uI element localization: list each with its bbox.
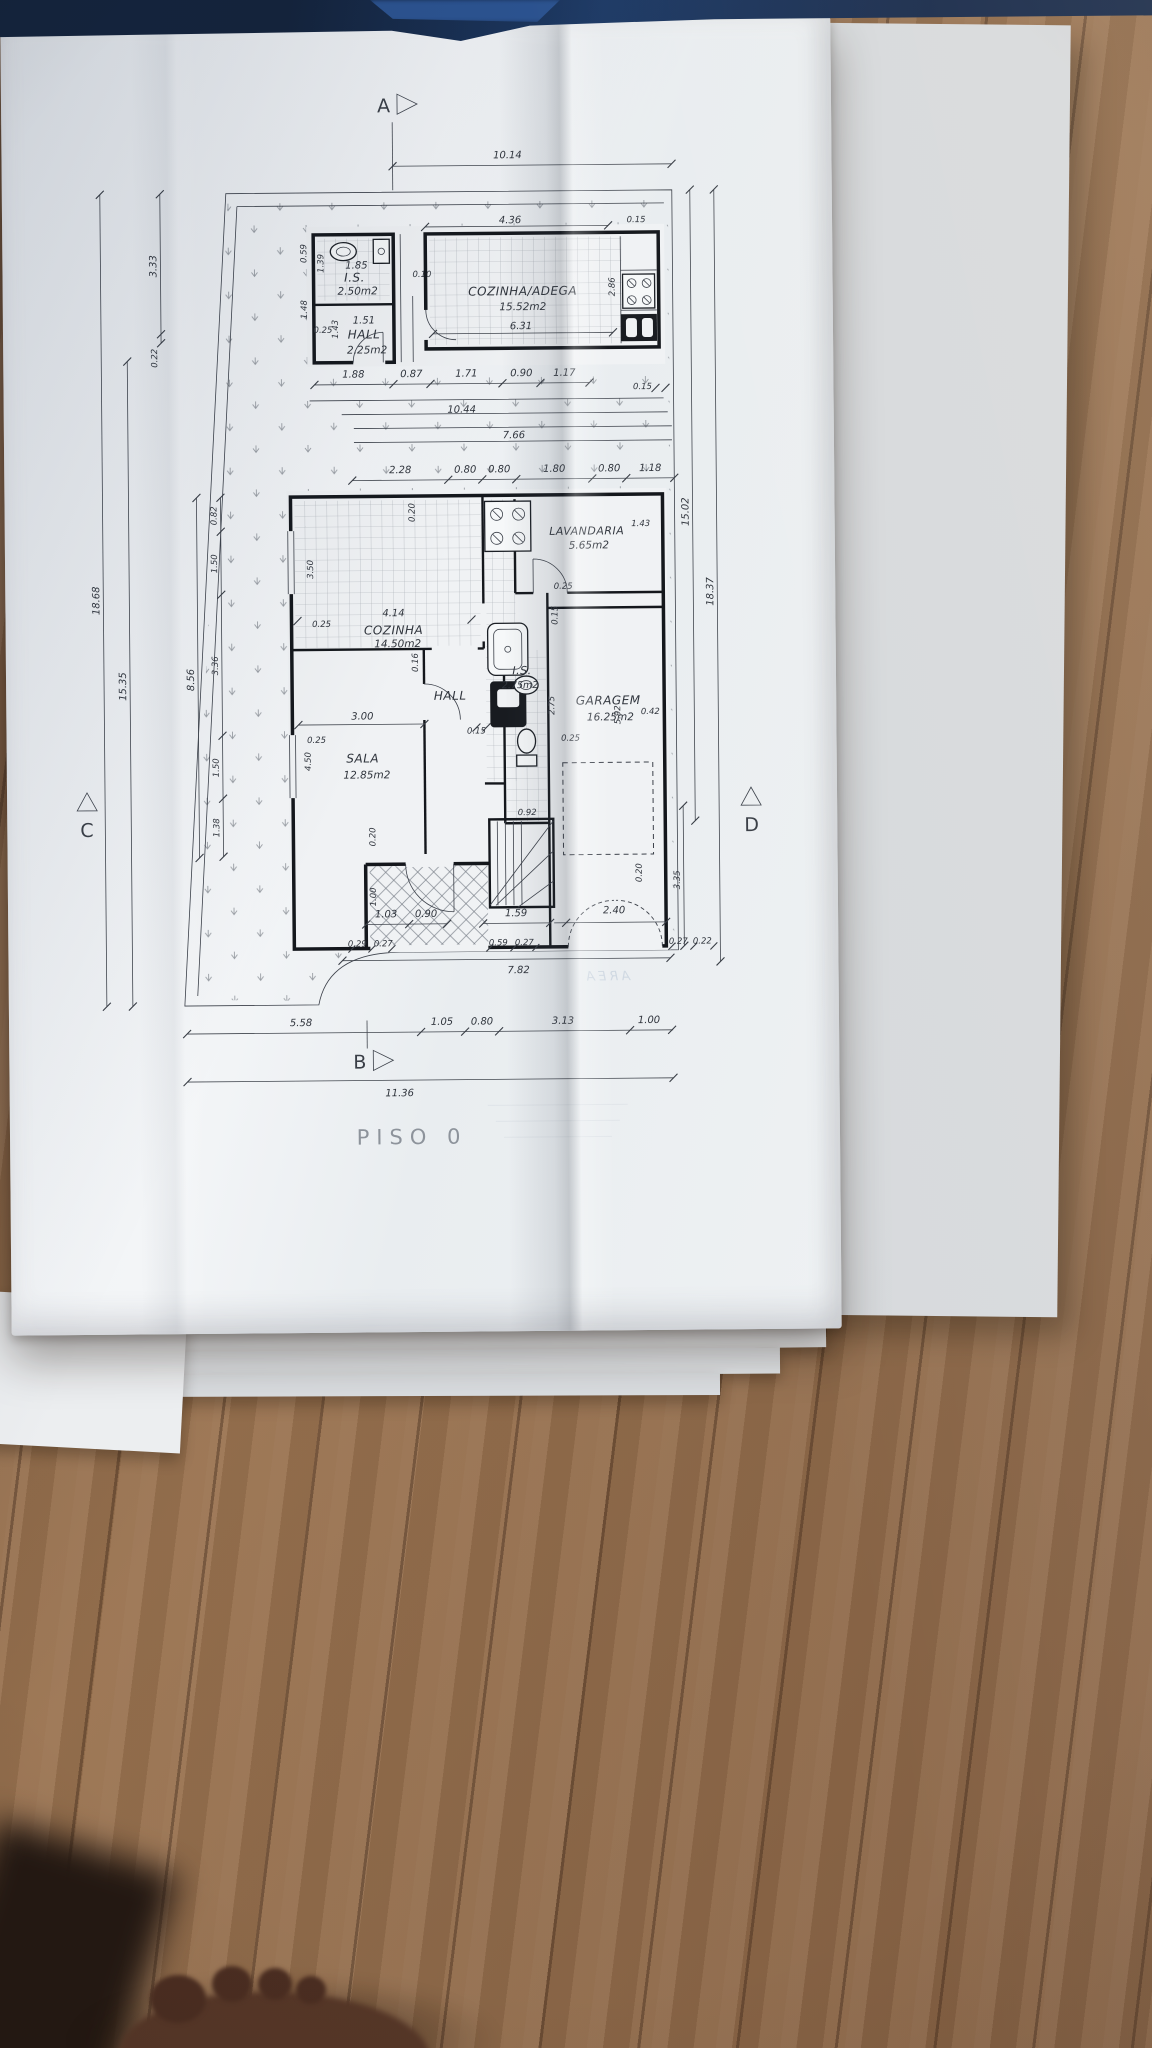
dim-adega-height: 2.86 [608, 277, 618, 297]
section-arrow-a [397, 94, 417, 114]
dim-left-wall-3: 1.50 [212, 758, 222, 777]
area-label-hall-upper: 2.25m2 [347, 344, 388, 356]
toilet-fixture [373, 239, 389, 263]
dim-upper-hall-height: 1.43 [331, 320, 341, 339]
room-label-cozinha-adega: COZINHA/ADEGA [468, 284, 577, 299]
dim-porch-depth: 1.00 [369, 887, 379, 906]
porch-paving [370, 865, 489, 946]
dim-garagem-offset-left: 0.25 [561, 734, 580, 744]
dim-garagem-height: 5.92 [613, 705, 623, 724]
dim-upper-hall-width: 1.51 [353, 315, 375, 326]
dim-top-width: 10.14 [493, 150, 522, 161]
dim-left-lower: 15.35 [118, 672, 129, 701]
dim-annex-left-b: 1.48 [300, 299, 310, 319]
dim-scale-4: 1.00 [638, 1015, 660, 1026]
dim-sala-width: 3.00 [351, 711, 373, 722]
dim-left-step: 0.22 [150, 349, 160, 368]
dim-sala-gap: 0.15 [467, 726, 486, 736]
dim-row1-0: 1.88 [342, 369, 364, 380]
dim-scale-1: 1.05 [431, 1017, 453, 1028]
room-label-is-upper: I.S. [344, 270, 365, 284]
dim-left-house: 8.56 [186, 669, 197, 691]
dim-row2-0: 2.28 [389, 465, 411, 476]
photo-of-floor-plan: A B C D 10.14 [0, 0, 1152, 2048]
dim-row4-l0: 0.29 [348, 939, 367, 949]
dim-row2-5: 1.18 [639, 463, 661, 474]
room-label-hall-upper: HALL [348, 327, 381, 341]
area-label-garagem: 16.25m2 [587, 711, 634, 723]
dim-row2-4: 0.80 [598, 463, 620, 474]
paper-back-sheet [805, 23, 1071, 1318]
dim-row1-2: 1.71 [455, 368, 477, 379]
dim-bottom-total: 11.36 [385, 1088, 414, 1099]
floor-plan-drawing: A B C D 10.14 [59, 61, 775, 1173]
bleed-text: AREA [583, 969, 631, 984]
plan-title: PISO 0 [357, 1125, 468, 1150]
dim-top: 10.14 [388, 149, 675, 171]
is-toilet-fixture [517, 729, 535, 753]
cooktop-fixture-cozinha [484, 501, 530, 551]
dim-garagem-wall: 0.15 [550, 606, 560, 625]
dim-row2-2: 0.80 [488, 464, 510, 475]
dim-upper-hall-offset: 0.25 [313, 326, 332, 336]
is-toilet-tank [517, 755, 537, 766]
area-label-lavandaria: 5.65m2 [569, 539, 610, 551]
dim-row3-2: 1.59 [505, 908, 527, 919]
dim-scale-3: 3.13 [552, 1016, 574, 1027]
dim-row4-l1: 0.27 [374, 939, 394, 949]
paper-stack-sheet [120, 1373, 720, 1397]
section-marker-c: C [80, 820, 93, 842]
dim-row1-3: 0.90 [510, 368, 532, 379]
dim-gap-note: 0.10 [412, 270, 431, 280]
dim-row4-m0: 0.59 [489, 938, 508, 948]
dim-row1-1: 0.87 [400, 369, 423, 380]
dim-garage-door-offset: 0.20 [635, 863, 645, 882]
dim-left-wall-4: 1.38 [212, 818, 222, 838]
room-label-hall: HALL [434, 689, 467, 703]
dim-row2-3: 1.80 [543, 464, 565, 475]
area-label-is: 2.75m2 [502, 680, 539, 691]
dim-cozinha-offset: 0.25 [312, 620, 331, 630]
dim-right-lower: 3.35 [673, 870, 683, 889]
dim-row4-m1: 0.27 [515, 938, 535, 948]
dim-row1-4: 1.17 [553, 368, 576, 379]
section-arrow-d [741, 787, 761, 805]
dim-left-total: 18.68 [91, 586, 102, 615]
dim-lavandaria: 1.43 [631, 519, 650, 529]
room-label-garagem: GARAGEM [576, 693, 641, 708]
dim-cozinha-top: 0.20 [407, 503, 417, 522]
dim-bottom-inner: 7.82 [507, 965, 529, 976]
toe [258, 1968, 292, 2000]
section-arrow-b [373, 1050, 393, 1070]
dim-adega-width: 4.36 [499, 215, 521, 226]
dim-band-upper: 10.44 [447, 405, 476, 416]
washbasin-fixture [330, 243, 356, 261]
dim-annex-left-a: 0.59 [299, 244, 309, 263]
dim-is-width: 0.92 [518, 808, 537, 818]
area-label-cozinha: 14.50m2 [374, 638, 421, 650]
dim-row2-1: 0.80 [454, 465, 476, 476]
toe [150, 1975, 206, 2023]
section-marker-d: D [744, 814, 759, 836]
section-marker-a: A [377, 95, 390, 117]
bleed-through: AREA [487, 969, 633, 1137]
dim-row3-0: 1.03 [375, 909, 397, 920]
dim-left-wall-2: 3.36 [211, 656, 221, 676]
area-label-is-upper: 2.50m2 [337, 285, 378, 297]
dim-porch-step: 0.20 [368, 827, 378, 846]
dim-garagem-offset: 0.42 [641, 707, 660, 717]
dim-scale-2: 0.80 [471, 1016, 493, 1027]
room-label-is: I.S. [512, 664, 531, 677]
section-arrow-c [77, 793, 97, 811]
dim-row1-end: 0.15 [633, 382, 652, 392]
dim-lavandaria-offset: 0.25 [554, 582, 573, 592]
dim-left-wall-1: 1.50 [210, 554, 220, 573]
area-label-sala: 12.85m2 [343, 769, 390, 781]
dim-adega-end: 0.15 [627, 215, 646, 225]
dim-wall-thickness: 0.16 [411, 652, 421, 672]
room-label-lavandaria: LAVANDARIA [549, 524, 624, 538]
plan-paper-spread: A B C D 10.14 [0, 16, 841, 1335]
area-label-cozinha-adega: 15.52m2 [499, 301, 546, 313]
dim-scale-0: 5.58 [290, 1018, 312, 1029]
dim-right-total: 18.37 [705, 576, 716, 605]
dim-band-lower: 7.66 [503, 430, 525, 441]
dim-cozinha-height: 3.50 [306, 560, 316, 579]
dim-cozinha-width: 4.14 [382, 608, 404, 619]
toe [212, 1966, 252, 2002]
room-label-sala: SALA [346, 751, 379, 765]
scale-row: 5.58 1.05 0.80 3.13 1.00 11.36 [183, 1015, 678, 1101]
dim-row3-1: 0.90 [415, 909, 437, 920]
room-label-cozinha: COZINHA [364, 623, 423, 638]
dim-row4-r0: 0.27 [669, 937, 689, 947]
dim-left-top: 3.33 [148, 255, 159, 277]
dim-right-inner: 15.02 [680, 497, 691, 526]
dim-adega-inner-width: 6.31 [510, 321, 532, 332]
dim-left-wall-0: 0.82 [210, 506, 220, 525]
dim-row3-3: 2.40 [603, 905, 625, 916]
blue-cloth-highlight [370, 0, 560, 22]
dim-sala-offset: 0.25 [307, 736, 326, 746]
dim-is-height: 2.75 [547, 696, 557, 715]
section-marker-b: B [353, 1051, 366, 1073]
dim-sala-height: 4.50 [304, 752, 314, 771]
dim-row4-r1: 0.22 [693, 936, 712, 946]
dim-upper-is-height: 1.39 [316, 254, 326, 273]
toe [296, 1976, 326, 2004]
